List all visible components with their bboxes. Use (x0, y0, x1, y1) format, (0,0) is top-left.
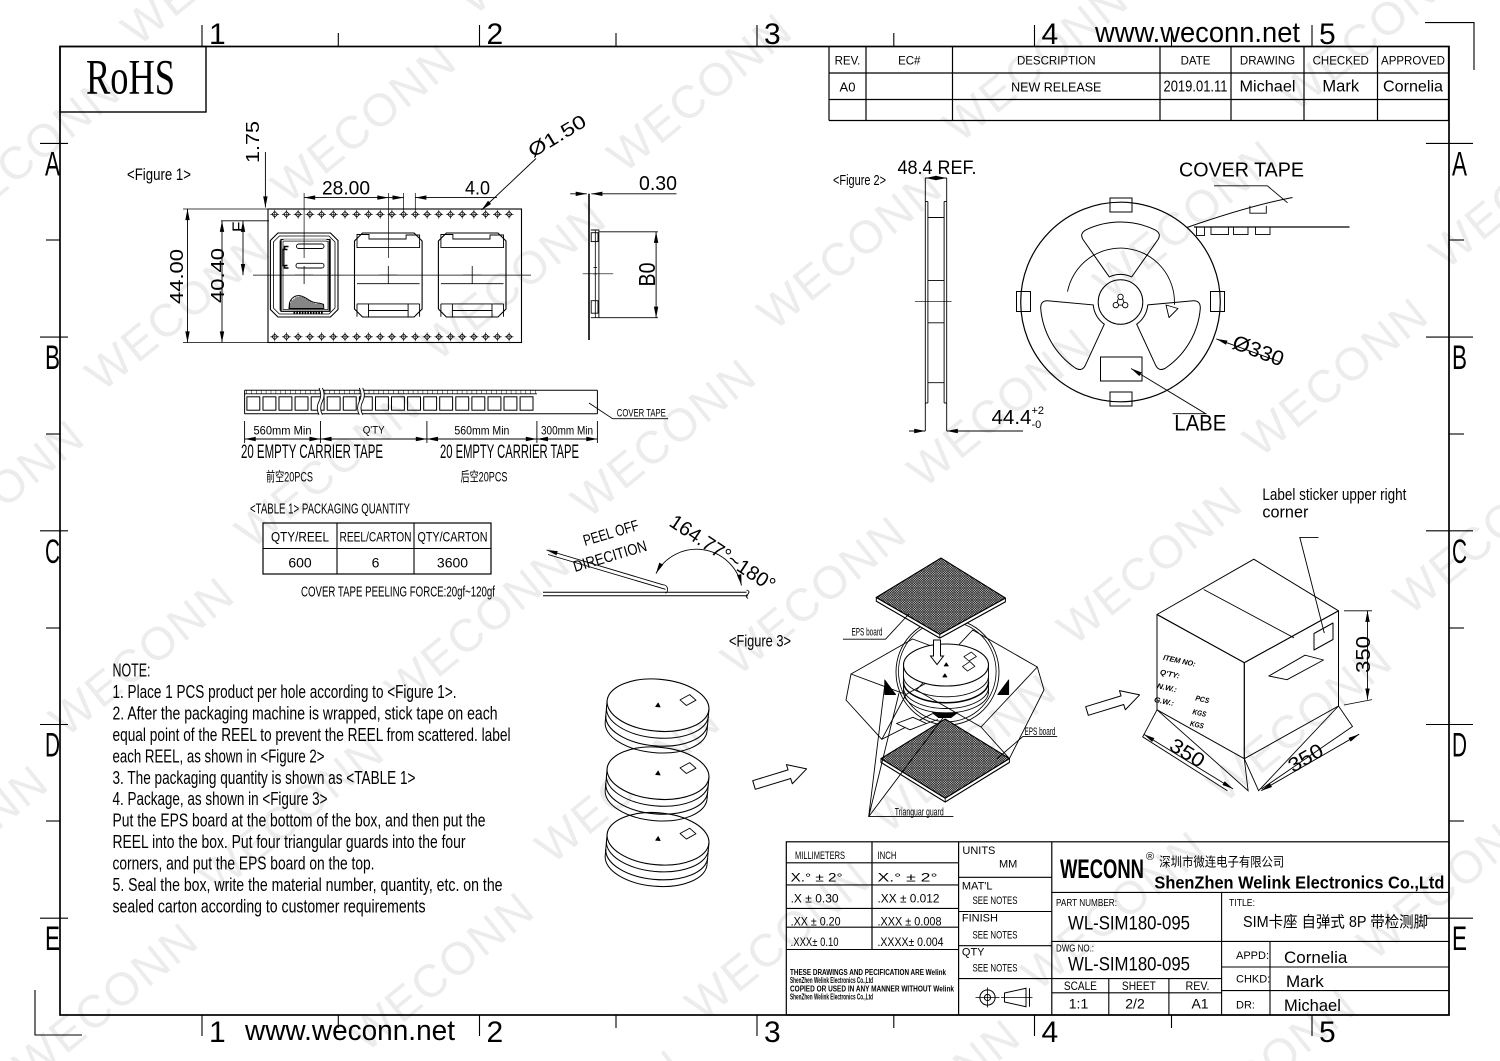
svg-text:B: B (45, 339, 60, 377)
svg-text:2: 2 (487, 1016, 504, 1049)
svg-text:300mm Min: 300mm Min (541, 424, 593, 438)
svg-text:corner: corner (1262, 503, 1308, 522)
svg-text:F: F (229, 222, 248, 232)
svg-text:C: C (1452, 533, 1467, 571)
svg-text:QTY/CARTON: QTY/CARTON (418, 529, 488, 545)
svg-text:+2: +2 (1032, 405, 1045, 417)
svg-text:FINISH: FINISH (962, 913, 998, 925)
svg-text:<Figure 2>: <Figure 2> (833, 172, 886, 189)
svg-text:E: E (1452, 920, 1467, 958)
svg-text:SCALE: SCALE (1064, 979, 1097, 993)
svg-text:WECONN: WECONN (1233, 287, 1438, 467)
svg-text:5: 5 (1319, 1016, 1336, 1049)
svg-text:WECONN: WECONN (1047, 475, 1252, 655)
svg-text:6: 6 (372, 555, 380, 571)
svg-text:Ø330: Ø330 (1229, 331, 1287, 371)
svg-text:INCH: INCH (878, 850, 897, 862)
svg-text:each REEL, as shown in <Figure: each REEL, as shown in <Figure 2> (113, 745, 325, 766)
svg-text:Michael: Michael (1240, 79, 1296, 96)
svg-text:EC#: EC# (898, 56, 921, 68)
svg-text:5: 5 (1319, 18, 1336, 51)
svg-text:WECONN: WECONN (825, 1008, 1030, 1061)
svg-text:5. Seal the box, write the mat: 5. Seal the box, write the material numb… (113, 874, 503, 895)
svg-text:后空20PCS: 后空20PCS (461, 470, 508, 485)
svg-text:CHECKED: CHECKED (1313, 56, 1369, 68)
svg-text:EPS board: EPS board (852, 627, 883, 639)
svg-text:NEW RELEASE: NEW RELEASE (1011, 81, 1101, 95)
svg-text:2. After the packaging machine: 2. After the packaging machine is wrappe… (113, 702, 498, 723)
svg-text:ShenZhen Welink Electronics Co: ShenZhen Welink Electronics Co.,Ltd (790, 992, 873, 1001)
svg-text:<TABLE 1> PACKAGING QUANTITY: <TABLE 1> PACKAGING QUANTITY (250, 502, 410, 518)
svg-text:.X ± 0.30: .X ± 0.30 (791, 892, 839, 906)
svg-text:www.weconn.net: www.weconn.net (1094, 17, 1300, 49)
svg-text:Label sticker upper right: Label sticker upper right (1262, 485, 1406, 504)
svg-text:WL-SIM180-095: WL-SIM180-095 (1068, 954, 1190, 976)
svg-text:COVER TAPE PEELING FORCE:20gf~: COVER TAPE PEELING FORCE:20gf~120gf (301, 585, 496, 601)
svg-text:COVER TAPE: COVER TAPE (1179, 160, 1304, 182)
svg-text:Michael: Michael (1284, 997, 1341, 1015)
svg-text:4. Package, as shown in <Figur: 4. Package, as shown in <Figure 3> (113, 788, 328, 809)
svg-text:X.° ± 2°: X.° ± 2° (791, 871, 843, 885)
svg-text:3. The packaging quantity is s: 3. The packaging quantity is shown as <T… (113, 767, 416, 788)
svg-text:1. Place 1 PCS product per hol: 1. Place 1 PCS product per hole accordin… (113, 681, 457, 702)
svg-text:560mm Min: 560mm Min (254, 424, 312, 438)
svg-text:C: C (45, 533, 60, 571)
svg-text:20 EMPTY CARRIER TAPE: 20 EMPTY CARRIER TAPE (440, 442, 579, 463)
svg-text:ITEM NO:: ITEM NO: (1162, 653, 1197, 669)
svg-text:深圳市微连电子有限公司: 深圳市微连电子有限公司 (1159, 855, 1284, 870)
svg-text:1:1: 1:1 (1069, 996, 1089, 1012)
svg-text:SEE NOTES: SEE NOTES (973, 895, 1018, 907)
svg-text:REEL into the box. Put four tr: REEL into the box. Put four triangular g… (113, 831, 466, 852)
svg-text:WECONN: WECONN (75, 221, 280, 401)
svg-text:44.4: 44.4 (992, 407, 1032, 429)
svg-text:equal point of the REEL to pre: equal point of the REEL to prevent the R… (113, 724, 511, 745)
svg-text:CHKD:: CHKD: (1236, 974, 1270, 986)
svg-text:PCS: PCS (1195, 694, 1211, 706)
svg-text:Cornelia: Cornelia (1383, 79, 1443, 96)
svg-text:2/2: 2/2 (1125, 996, 1145, 1012)
svg-text:.XX ± 0.20: .XX ± 0.20 (791, 915, 841, 929)
svg-text:MILLIMETERS: MILLIMETERS (795, 850, 845, 862)
svg-text:164.77°~180°: 164.77°~180° (665, 511, 779, 597)
svg-text:SEE NOTES: SEE NOTES (973, 930, 1018, 942)
svg-text:WECONN: WECONN (1383, 444, 1500, 624)
svg-text:QTY/REEL: QTY/REEL (271, 529, 329, 545)
svg-text:D: D (1452, 727, 1467, 765)
svg-text:WL-SIM180-095: WL-SIM180-095 (1068, 913, 1190, 935)
svg-text:www.weconn.net: www.weconn.net (244, 1015, 455, 1047)
svg-text:WECONN: WECONN (1083, 129, 1288, 309)
svg-text:REV.: REV. (835, 56, 861, 68)
svg-text:N.W.:: N.W.: (1156, 681, 1178, 694)
svg-text:600: 600 (288, 555, 312, 571)
svg-text:WECONN: WECONN (1060, 854, 1144, 884)
svg-text:UNITS: UNITS (962, 845, 995, 857)
svg-text:KGS: KGS (1192, 707, 1208, 719)
svg-text:4: 4 (1042, 1016, 1059, 1049)
svg-text:SIM卡座 自弹式 8P 带检测脚: SIM卡座 自弹式 8P 带检测脚 (1243, 913, 1428, 931)
svg-text:Q'TY: Q'TY (363, 425, 386, 437)
svg-text:前空20PCS: 前空20PCS (266, 469, 313, 485)
svg-text:<Figure 3>: <Figure 3> (729, 632, 791, 651)
svg-text:MAT'L: MAT'L (962, 881, 993, 893)
svg-text:corners, and put the EPS board: corners, and put the EPS board on the to… (113, 853, 375, 874)
svg-text:-0: -0 (1032, 419, 1042, 431)
svg-text:SHEET: SHEET (1122, 979, 1157, 993)
svg-text:®: ® (1146, 851, 1154, 863)
svg-text:3: 3 (764, 18, 781, 51)
svg-text:COVER TAPE: COVER TAPE (617, 408, 666, 420)
svg-text:RoHS: RoHS (86, 49, 175, 105)
svg-text:3600: 3600 (437, 555, 468, 571)
svg-text:MM: MM (999, 859, 1017, 871)
svg-text:WECONN: WECONN (489, 1039, 694, 1061)
svg-text:4.0: 4.0 (465, 179, 490, 200)
svg-text:DESCRIPTION: DESCRIPTION (1017, 56, 1096, 68)
svg-text:PART NUMBER:: PART NUMBER: (1056, 897, 1117, 909)
svg-text:3: 3 (764, 1016, 781, 1049)
svg-text:A0: A0 (840, 80, 856, 95)
svg-text:B0: B0 (634, 263, 660, 287)
svg-text:A: A (45, 145, 60, 183)
svg-text:.XXXX± 0.004: .XXXX± 0.004 (878, 935, 944, 949)
svg-text:DRAWING: DRAWING (1240, 56, 1295, 68)
svg-text:0.30: 0.30 (639, 173, 677, 195)
svg-text:DR:: DR: (1236, 1000, 1255, 1012)
svg-text:WECONN: WECONN (675, 851, 880, 1031)
svg-text:560mm Min: 560mm Min (454, 424, 509, 438)
svg-text:2: 2 (487, 18, 504, 51)
svg-text:Cornelia: Cornelia (1284, 948, 1348, 967)
svg-text:DIRECITION: DIRECITION (571, 538, 649, 576)
svg-text:Ø1.50: Ø1.50 (525, 111, 591, 162)
svg-text:.XXX ± 0.008: .XXX ± 0.008 (878, 915, 942, 929)
svg-text:WECONN: WECONN (0, 754, 58, 934)
svg-text:.XXX± 0.10: .XXX± 0.10 (791, 935, 839, 949)
svg-text:WECONN: WECONN (3, 912, 208, 1061)
svg-text:Mark: Mark (1322, 78, 1359, 96)
svg-text:APPD:: APPD: (1236, 950, 1269, 962)
svg-text:A: A (1452, 145, 1467, 183)
svg-text:ShenZhen Welink Electronics Co: ShenZhen Welink Electronics Co.,Ltd (1154, 873, 1444, 893)
svg-text:1.75: 1.75 (243, 121, 263, 163)
svg-text:D: D (45, 727, 60, 765)
svg-text:1: 1 (209, 18, 226, 51)
svg-text:X.° ± 2°: X.° ± 2° (878, 871, 938, 885)
svg-text:B: B (1452, 339, 1467, 377)
svg-text:sealed carton according to cus: sealed carton according to customer requ… (113, 896, 426, 917)
svg-text:NOTE:: NOTE: (113, 660, 151, 681)
svg-text:REEL/CARTON: REEL/CARTON (340, 529, 412, 545)
svg-text:A1: A1 (1191, 996, 1208, 1012)
svg-text:WECONN: WECONN (1419, 99, 1500, 279)
svg-text:TITLE:: TITLE: (1229, 897, 1255, 909)
svg-text:E: E (45, 920, 60, 958)
svg-text:WECONN: WECONN (447, 0, 652, 24)
svg-text:<Figure 1>: <Figure 1> (127, 166, 191, 184)
svg-text:DATE: DATE (1181, 56, 1211, 68)
svg-text:44.00: 44.00 (167, 249, 187, 304)
svg-text:28.00: 28.00 (322, 179, 370, 200)
svg-text:REV.: REV. (1186, 979, 1210, 993)
svg-text:.XX ± 0.012: .XX ± 0.012 (878, 892, 940, 906)
svg-text:20 EMPTY CARRIER TAPE: 20 EMPTY CARRIER TAPE (241, 442, 383, 463)
svg-text:40.40: 40.40 (208, 248, 228, 303)
svg-text:QTY: QTY (962, 947, 985, 959)
svg-text:LABE: LABE (1174, 411, 1226, 436)
svg-text:Put the EPS board at the botto: Put the EPS board at the bottom of the b… (113, 810, 486, 831)
svg-text:SEE NOTES: SEE NOTES (973, 963, 1018, 975)
svg-text:1: 1 (209, 1016, 226, 1049)
svg-text:4: 4 (1042, 18, 1059, 51)
svg-text:Q'TY:: Q'TY: (1159, 668, 1181, 681)
svg-text:48.4 REF.: 48.4 REF. (898, 158, 977, 179)
svg-text:350: 350 (1353, 636, 1375, 673)
svg-text:APPROVED: APPROVED (1381, 56, 1445, 68)
svg-text:WECONN: WECONN (561, 348, 766, 528)
svg-text:Mark: Mark (1286, 972, 1324, 991)
svg-text:2019.01.11: 2019.01.11 (1164, 79, 1228, 96)
